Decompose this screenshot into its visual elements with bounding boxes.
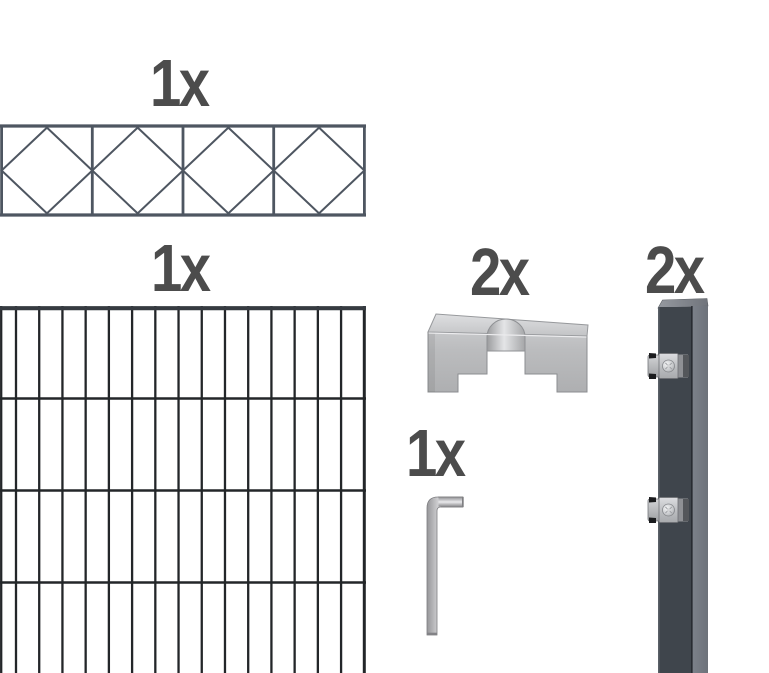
ornamental-panel-graphic xyxy=(0,124,366,217)
cover-bracket-graphic xyxy=(426,308,590,393)
qty-label-hex-key: 1x xyxy=(406,420,464,487)
post-corner-edge xyxy=(691,306,692,673)
diamond-ornament xyxy=(274,128,365,214)
hex-key-arm xyxy=(439,497,463,506)
post-side-face xyxy=(692,306,708,673)
hex-key-graphic xyxy=(420,492,470,640)
qty-label-posts: 2x xyxy=(645,237,703,304)
post-graphic xyxy=(645,296,769,673)
mesh-panel-graphic xyxy=(0,305,366,673)
diamond-ornament xyxy=(183,128,274,214)
bracket-left-shade xyxy=(428,332,435,392)
qty-label-cover-brackets: 2x xyxy=(470,239,528,306)
hex-key-tip-end xyxy=(462,497,464,507)
qty-label-decorative-panel: 1x xyxy=(150,50,208,117)
post-clamp-upper xyxy=(648,353,689,379)
fence-kit-contents-figure: 1x 1x 2x 1x 2x xyxy=(0,0,769,673)
hex-key-body xyxy=(427,497,463,635)
post-clamp-lower xyxy=(648,497,689,523)
qty-label-mesh-panel: 1x xyxy=(151,235,209,302)
diamond-ornament xyxy=(2,128,93,214)
diamond-ornament xyxy=(92,128,183,214)
hex-key-bottom-end xyxy=(427,633,437,635)
